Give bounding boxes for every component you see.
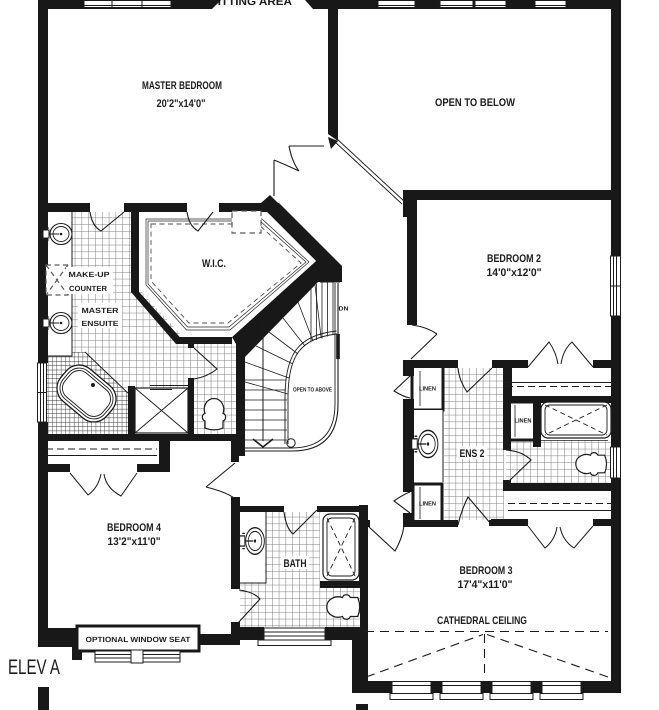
svg-text:BEDROOM 3: BEDROOM 3 <box>460 565 513 577</box>
svg-text:MAKE-UP: MAKE-UP <box>69 270 110 279</box>
svg-text:SITTING AREA: SITTING AREA <box>210 0 292 8</box>
svg-text:CATHEDRAL CEILING: CATHEDRAL CEILING <box>437 615 527 627</box>
svg-text:ENS 2: ENS 2 <box>460 448 485 460</box>
svg-text:14'0"x12'0": 14'0"x12'0" <box>487 267 542 279</box>
svg-text:ELEV A: ELEV A <box>8 656 60 679</box>
svg-text:MASTER: MASTER <box>82 306 120 315</box>
svg-text:BEDROOM 2: BEDROOM 2 <box>487 253 541 265</box>
svg-text:13'2"x11'0": 13'2"x11'0" <box>108 536 161 548</box>
svg-text:DN: DN <box>339 306 349 313</box>
svg-text:20'2"x14'0": 20'2"x14'0" <box>157 98 206 110</box>
svg-text:COUNTER: COUNTER <box>69 284 108 293</box>
svg-text:17'4"x11'0": 17'4"x11'0" <box>458 579 513 591</box>
svg-text:LINEN: LINEN <box>419 386 436 393</box>
svg-text:OPEN TO ABOVE: OPEN TO ABOVE <box>293 387 332 394</box>
svg-text:OPTIONAL WINDOW SEAT: OPTIONAL WINDOW SEAT <box>86 635 191 644</box>
svg-text:ENSUITE: ENSUITE <box>82 319 119 328</box>
svg-text:BEDROOM 4: BEDROOM 4 <box>107 522 162 534</box>
svg-text:W.I.C.: W.I.C. <box>202 258 226 270</box>
svg-text:OPEN TO BELOW: OPEN TO BELOW <box>435 97 516 109</box>
svg-text:MASTER BEDROOM: MASTER BEDROOM <box>142 80 222 92</box>
svg-text:BATH: BATH <box>284 558 307 570</box>
svg-text:LINEN: LINEN <box>419 501 436 508</box>
svg-text:LINEN: LINEN <box>515 418 532 425</box>
